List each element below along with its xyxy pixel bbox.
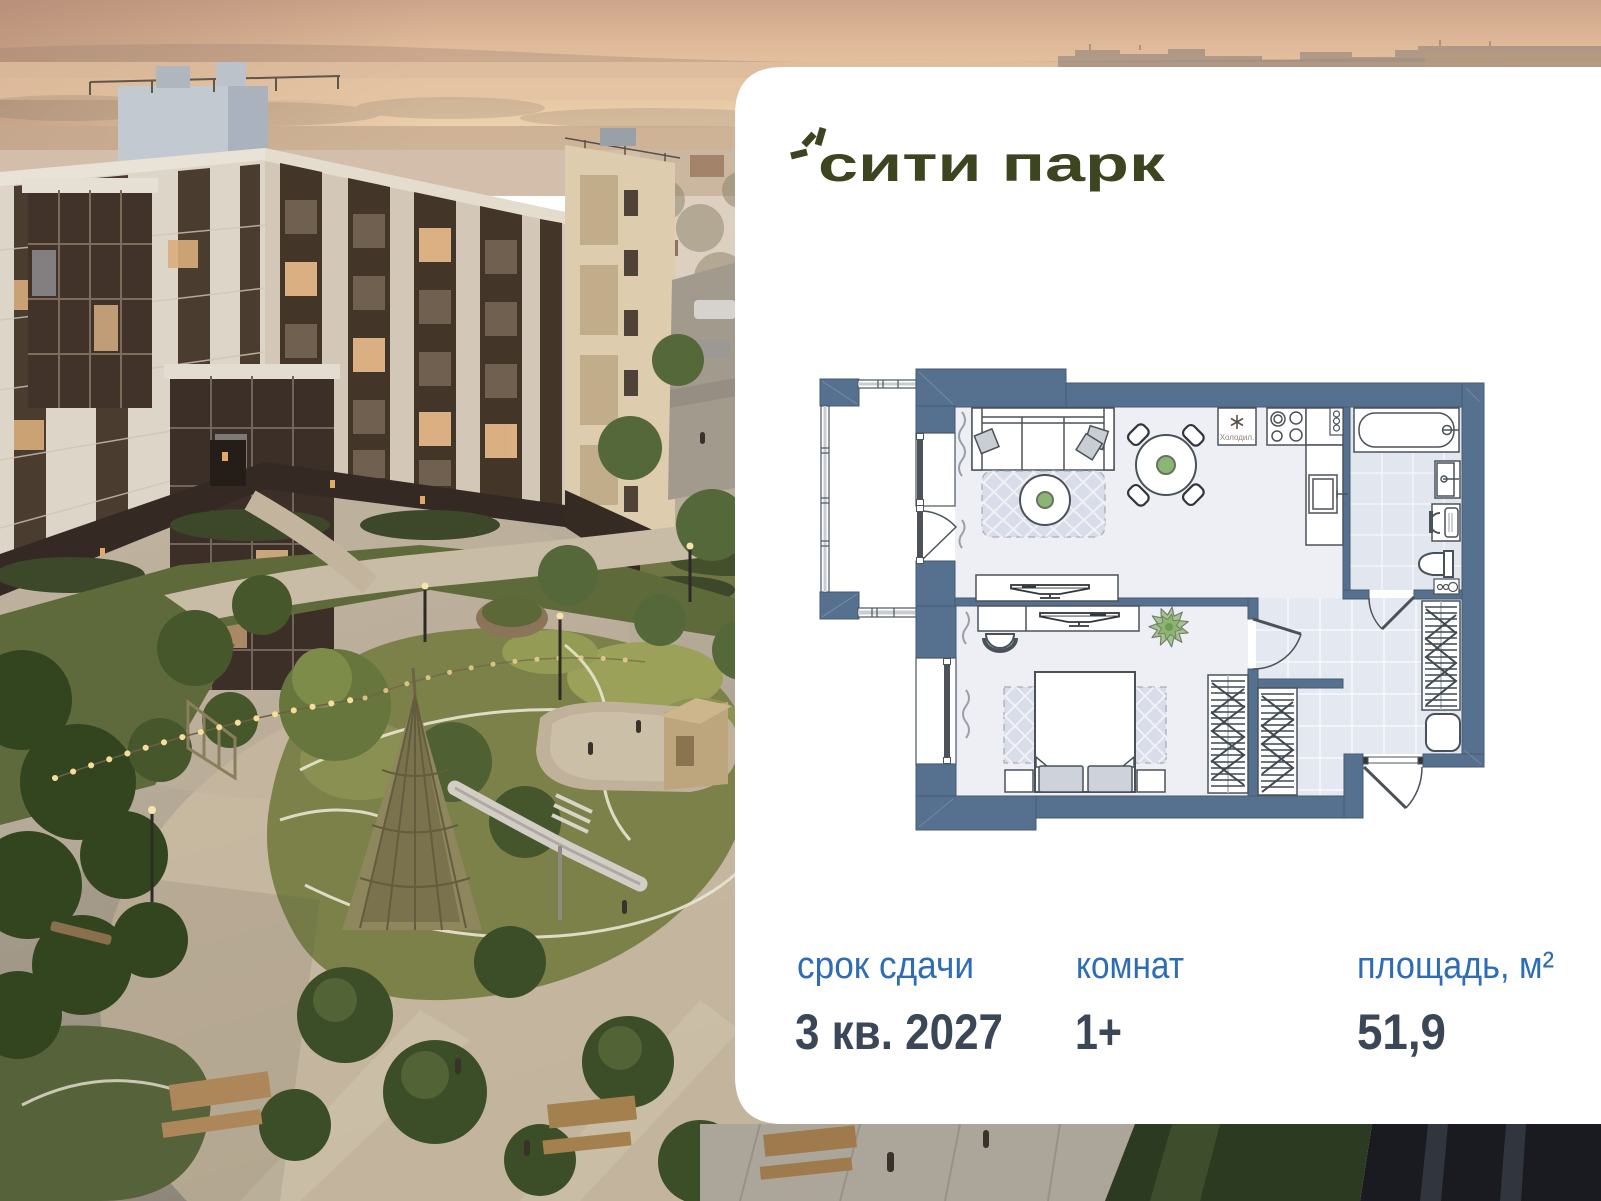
svg-text:3 кв. 2027: 3 кв. 2027 [795, 1004, 1003, 1060]
svg-text:срок сдачи: срок сдачи [797, 945, 974, 987]
svg-text:51,9: 51,9 [1357, 1004, 1446, 1060]
svg-text:сити парк: сити парк [818, 136, 1166, 192]
svg-text:комнат: комнат [1076, 945, 1184, 987]
svg-text:площадь, м²: площадь, м² [1357, 945, 1554, 987]
svg-text:Холодил.: Холодил. [1220, 433, 1255, 442]
svg-text:1+: 1+ [1075, 1004, 1122, 1060]
